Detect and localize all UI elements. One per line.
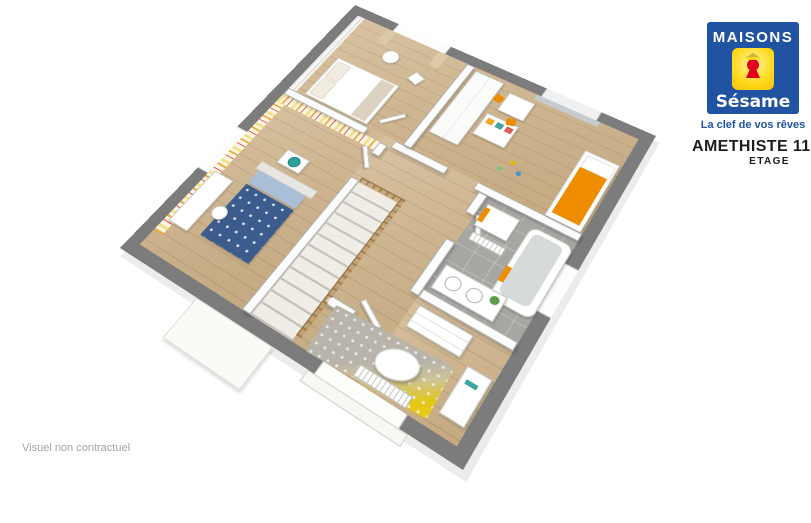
brand-name-top: MAISONS — [713, 29, 794, 46]
disclaimer-text: Visuel non contractuel — [22, 442, 130, 454]
brand-tagline: La clef de vos rêves — [691, 119, 811, 131]
logo-gold-square — [732, 48, 774, 90]
plan-title: AMETHISTE 110 GI — [692, 138, 811, 156]
page: { "brand": { "name_top": "MAISONS", "nam… — [0, 0, 811, 480]
brand-name-bottom: Sésame — [716, 92, 791, 112]
plan-subtitle: ETAGE — [692, 156, 811, 167]
floorplan-3d-view — [120, 5, 656, 470]
house-roof-icon — [745, 53, 761, 58]
brand-logo: MAISONS Sésame — [707, 22, 799, 114]
